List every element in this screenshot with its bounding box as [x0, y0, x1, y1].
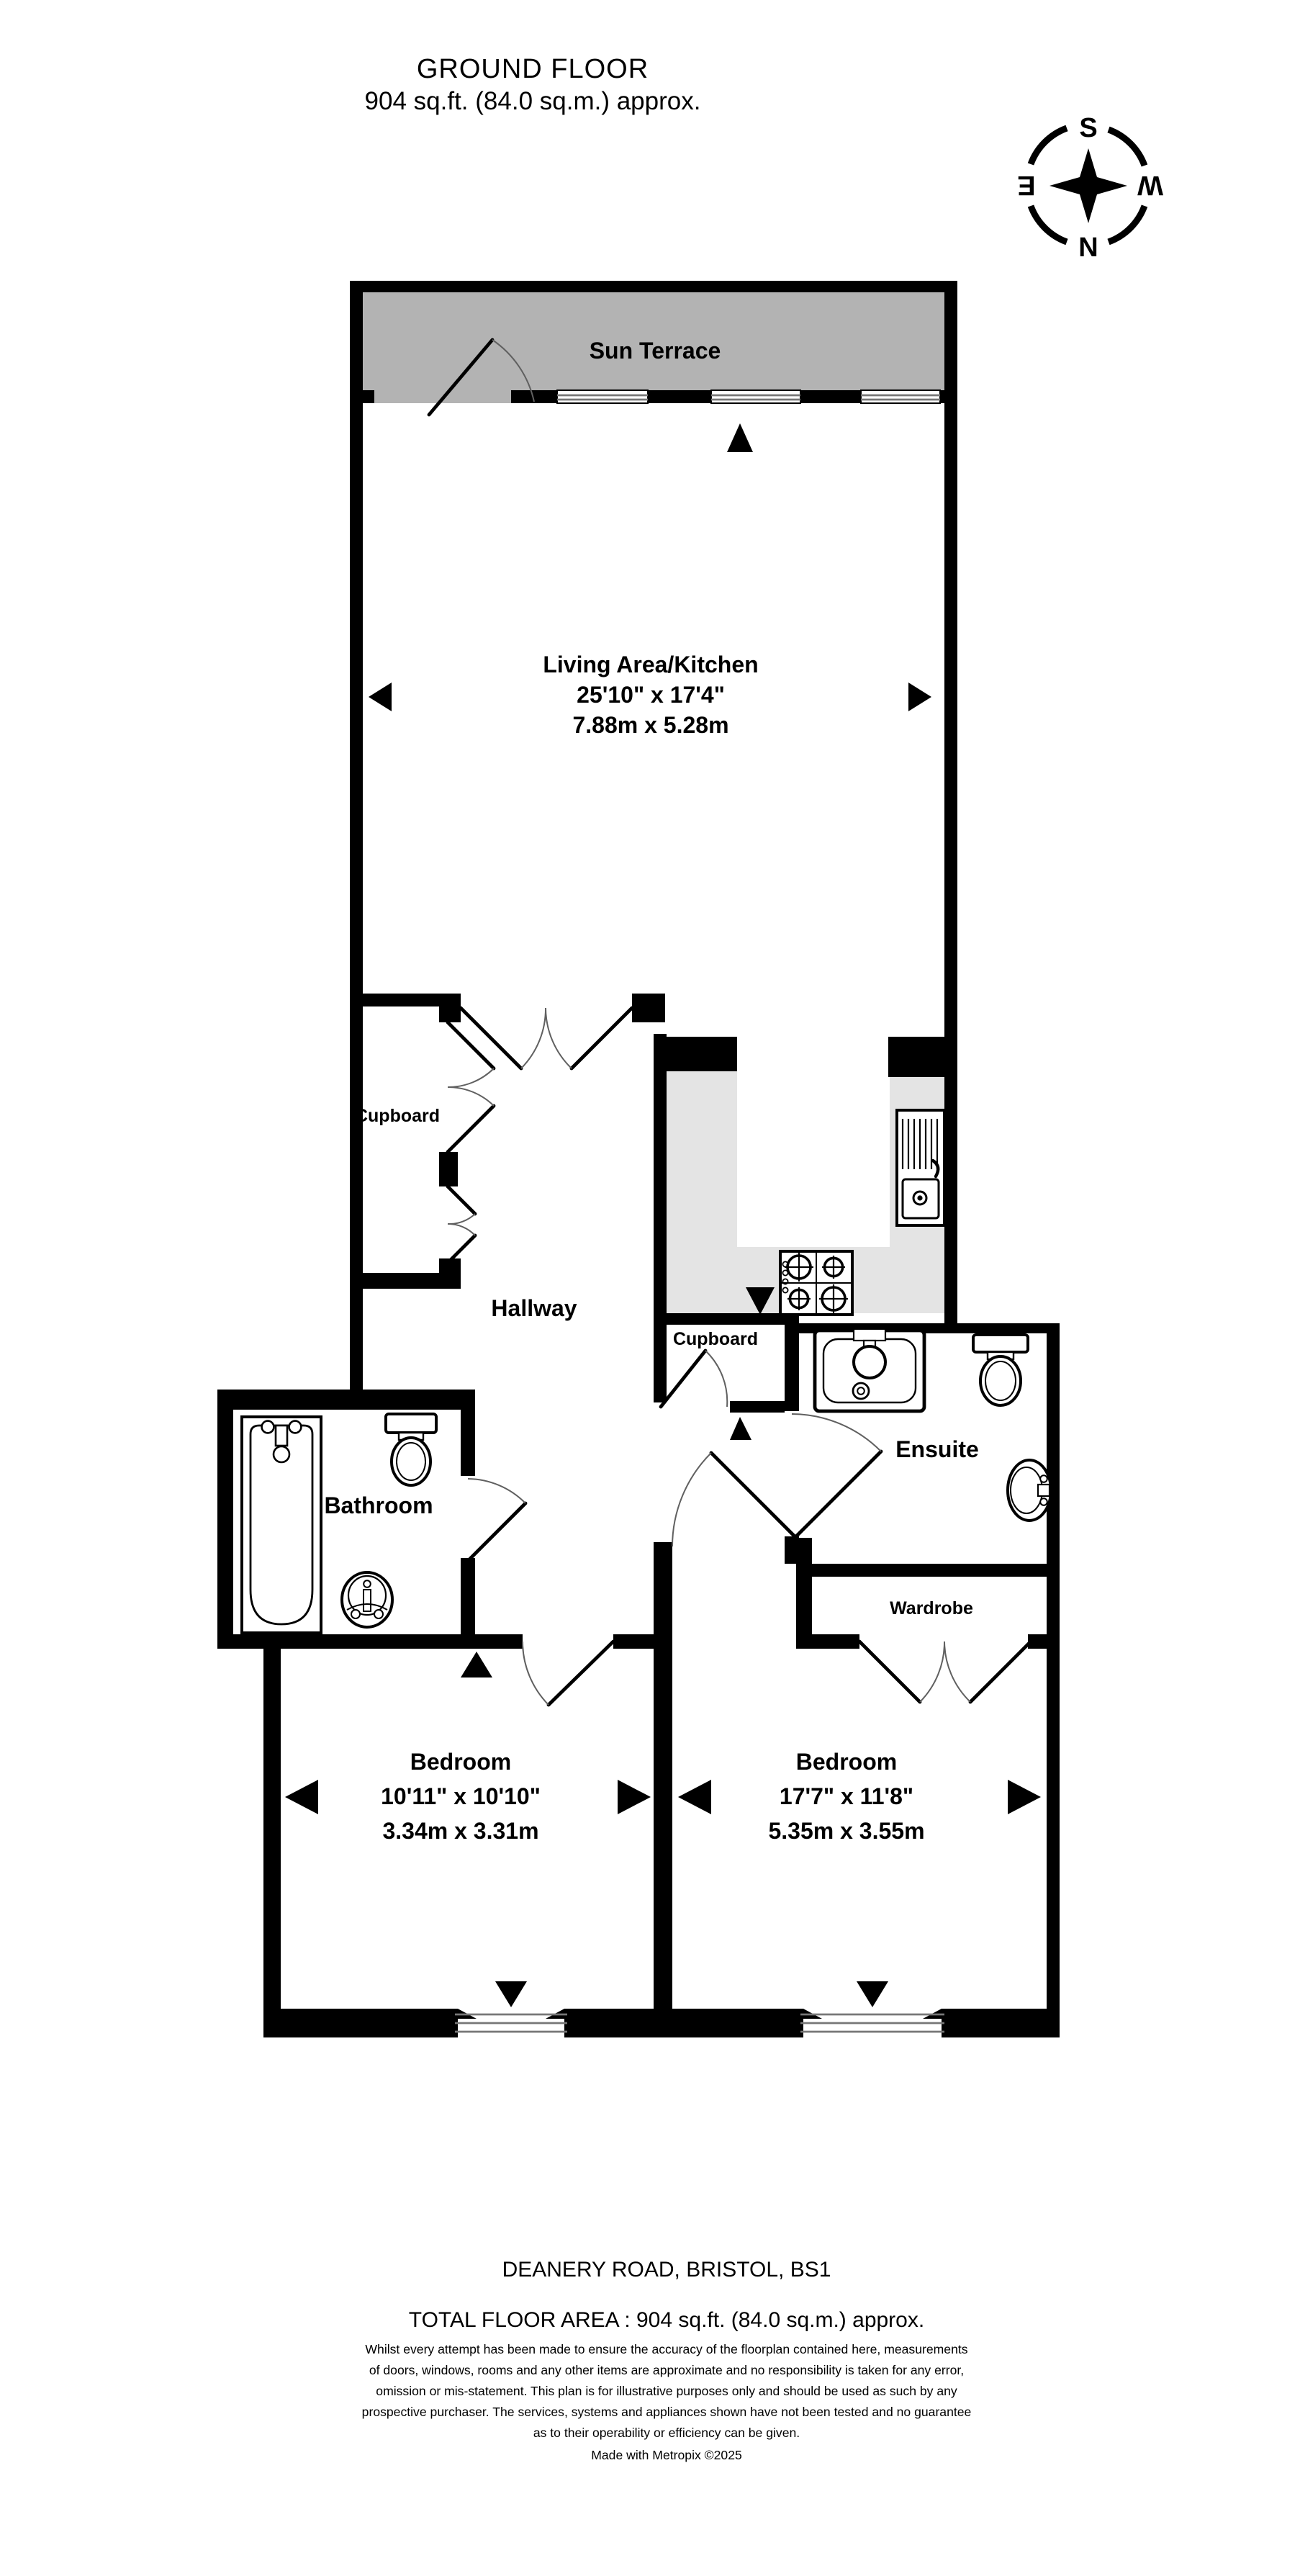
- bedroom-right-door-swing: [672, 1453, 805, 1546]
- cupboard-middle-label: Cupboard: [673, 1329, 758, 1349]
- cupboard-middle-door-swing: [661, 1351, 727, 1407]
- plan-title: GROUND FLOOR 904 sq.ft. (84.0 sq.m.) app…: [365, 54, 701, 115]
- terrace-window: [557, 390, 940, 403]
- bathroom-label: Bathroom: [324, 1492, 433, 1518]
- measure-arrow-left-icon: [369, 683, 392, 711]
- page-subtitle: 904 sq.ft. (84.0 sq.m.) approx.: [365, 87, 701, 115]
- disclaimer-line: Whilst every attempt has been made to en…: [365, 2342, 967, 2356]
- compass-star-icon: [1050, 148, 1127, 223]
- disclaimer-line: prospective purchaser. The services, sys…: [362, 2405, 972, 2419]
- bathroom-basin-icon: [342, 1572, 392, 1627]
- compass-south: S: [1079, 113, 1097, 143]
- compass-east: E: [1017, 170, 1035, 200]
- compass-north: N: [1078, 233, 1098, 263]
- wardrobe-doors-swing: [859, 1641, 1031, 1702]
- total-area-line: TOTAL FLOOR AREA : 904 sq.ft. (84.0 sq.m…: [409, 2308, 924, 2332]
- fixtures: [242, 1110, 1051, 1633]
- window-arrow-down-icon: [495, 1981, 527, 2007]
- disclaimer-line: as to their operability or efficiency ca…: [533, 2426, 800, 2440]
- page-title: GROUND FLOOR: [417, 54, 649, 84]
- bedroom-window: [800, 2014, 944, 2032]
- kitchen-walkway: [737, 1071, 890, 1247]
- bedroom-left-dims-metric: 3.34m x 3.31m: [382, 1818, 538, 1844]
- measure-arrow-left-icon: [285, 1780, 318, 1814]
- compass-icon: S N W E: [1017, 113, 1163, 263]
- measure-arrow-left-icon: [678, 1780, 711, 1814]
- credit-line: Made with Metropix ©2025: [591, 2448, 742, 2462]
- living-dims-metric: 7.88m x 5.28m: [572, 712, 728, 738]
- bedroom-left-door-swing: [523, 1641, 613, 1705]
- window-arrow-down-icon: [857, 1981, 888, 2007]
- doors: [429, 340, 1031, 1705]
- stove-icon: [780, 1251, 852, 1315]
- bathroom-toilet-icon: [386, 1414, 436, 1485]
- entry-arrow-up-icon: [727, 423, 753, 452]
- entry-arrow-up-icon: [461, 1652, 492, 1677]
- shower-icon: [815, 1329, 924, 1411]
- address-line: DEANERY ROAD, BRISTOL, BS1: [502, 2258, 831, 2282]
- ensuite-basin-icon: [1008, 1460, 1051, 1521]
- footer: DEANERY ROAD, BRISTOL, BS1 TOTAL FLOOR A…: [362, 2258, 972, 2462]
- living-label: Living Area/Kitchen: [543, 652, 758, 677]
- cupboard-left-doors-swing: [448, 1022, 494, 1263]
- entry-arrow-up-icon: [730, 1417, 751, 1440]
- disclaimer-line: of doors, windows, rooms and any other i…: [369, 2363, 964, 2377]
- ensuite-door-swing: [792, 1414, 881, 1541]
- measure-arrow-right-icon: [908, 683, 931, 711]
- bedroom-left-dims-imperial: 10'11" x 10'10": [381, 1783, 541, 1809]
- disclaimer-line: omission or mis-statement. This plan is …: [376, 2384, 957, 2398]
- bedroom-left-label: Bedroom: [410, 1749, 511, 1775]
- floor-plan-svg: GROUND FLOOR 904 sq.ft. (84.0 sq.m.) app…: [0, 0, 1300, 2576]
- kitchen-sink-icon: [897, 1110, 944, 1225]
- living-dims-imperial: 25'10" x 17'4": [577, 682, 725, 708]
- ensuite-toilet-icon: [973, 1335, 1028, 1405]
- measure-arrow-right-icon: [618, 1780, 651, 1814]
- cupboard-left-label: Cupboard: [355, 1106, 440, 1126]
- bedroom-right-label: Bedroom: [796, 1749, 897, 1775]
- hallway-label: Hallway: [491, 1295, 577, 1321]
- wardrobe-label: Wardrobe: [890, 1598, 973, 1618]
- ensuite-label: Ensuite: [895, 1436, 979, 1462]
- bathtub-icon: [242, 1417, 321, 1633]
- measure-arrow-right-icon: [1008, 1780, 1041, 1814]
- bathroom-door-swing: [468, 1479, 525, 1561]
- compass-west: W: [1137, 170, 1163, 200]
- bedroom-right-dims-imperial: 17'7" x 11'8": [780, 1783, 913, 1809]
- bedroom-right-dims-metric: 5.35m x 3.55m: [768, 1818, 924, 1844]
- floor-plan-page: GROUND FLOOR 904 sq.ft. (84.0 sq.m.) app…: [0, 0, 1300, 2576]
- sun-terrace-label: Sun Terrace: [590, 338, 721, 364]
